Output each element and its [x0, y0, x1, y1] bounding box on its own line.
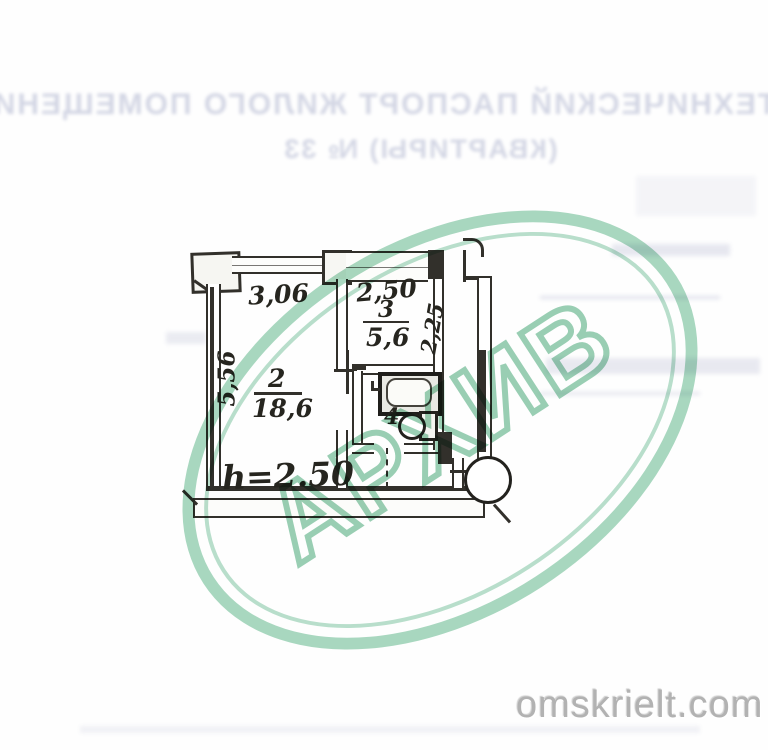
scanned-page: ТЕХНИЧЕСКИЙ ПАСПОРТ ЖИЛОГО ПОМЕЩЕНИ (КВА… — [0, 0, 768, 750]
window-room2 — [232, 256, 324, 274]
site-credit: omskrielt.com — [516, 684, 763, 727]
